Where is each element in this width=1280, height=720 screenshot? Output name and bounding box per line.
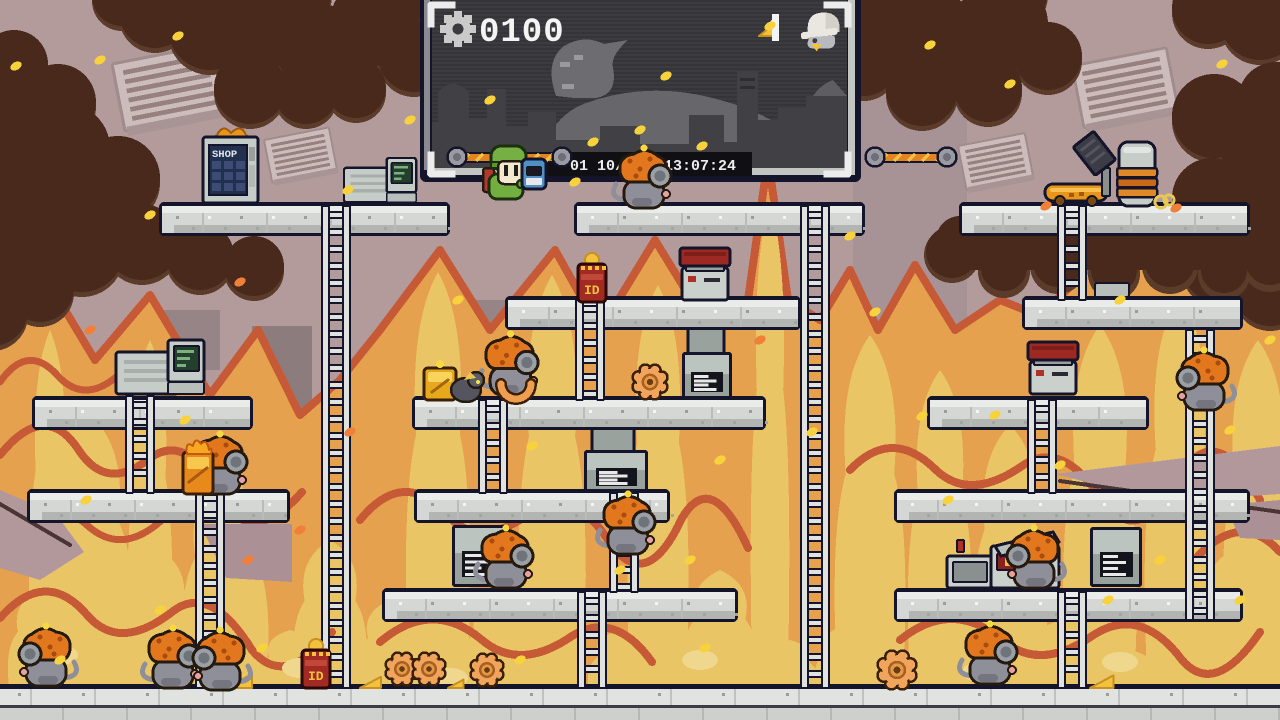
svg-text:13:07:24: 13:07:24: [664, 158, 736, 175]
svg-text:SHOP: SHOP: [212, 149, 237, 161]
svg-text:ID: ID: [308, 669, 324, 684]
svg-text:0100: 0100: [479, 14, 565, 52]
svg-text:ID: ID: [584, 283, 600, 298]
